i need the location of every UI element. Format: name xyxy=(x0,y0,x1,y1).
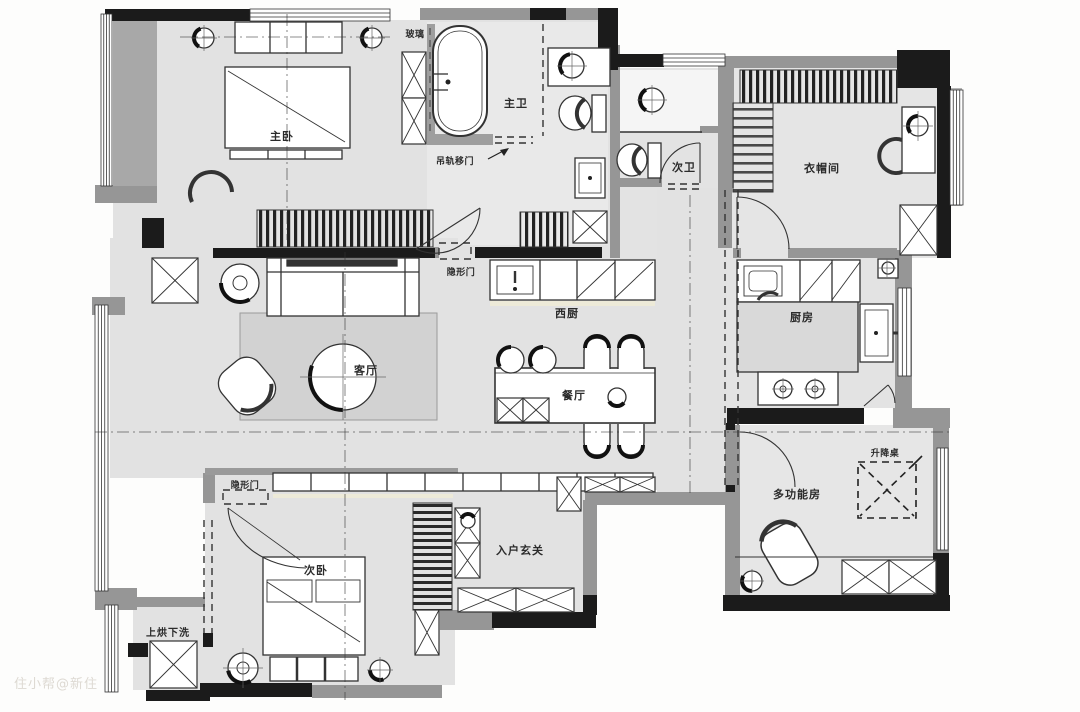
dining-chair-icon xyxy=(618,424,644,457)
label-second-bath: 次卫 xyxy=(672,160,696,174)
shower-area-floor xyxy=(620,70,718,132)
stool-icon xyxy=(498,347,524,373)
watermark-text: 住小帮@新住 xyxy=(14,676,98,692)
bath-cabinet-icon xyxy=(575,158,605,198)
dining-chair-icon xyxy=(584,336,610,369)
floor-plan-image: 主卧 主卫 次卫 衣帽间 客厅 西厨 餐厅 厨房 多功能房 次卧 入户玄关 上烘… xyxy=(0,0,1080,712)
window-icon xyxy=(663,54,725,66)
kitchen-counter-icon xyxy=(737,260,860,302)
bathtub-icon xyxy=(433,26,487,136)
label-glass: 玻璃 xyxy=(405,28,424,40)
master-toilet-icon xyxy=(559,95,606,132)
label-second-bedroom: 次卧 xyxy=(304,563,328,577)
second-bedroom-wardrobe-icon xyxy=(413,503,452,610)
xbox-cabinet-icon xyxy=(842,560,889,594)
label-laundry: 上烘下洗 xyxy=(146,626,190,639)
window-icon xyxy=(937,448,948,550)
xbox-cabinet-icon xyxy=(402,98,426,144)
window-icon xyxy=(898,288,911,376)
sofa-icon xyxy=(267,258,419,316)
cabinet-accent-strip xyxy=(273,494,453,498)
xbox-cabinet-icon xyxy=(152,258,198,303)
label-living-room: 客厅 xyxy=(353,363,378,377)
xbox-cabinet-icon xyxy=(516,588,574,612)
xbox-cabinet-icon xyxy=(573,211,607,243)
hall-wardrobe-icon xyxy=(520,212,568,247)
side-table-icon xyxy=(221,264,259,302)
stove-icon xyxy=(758,372,838,405)
floor-plan-canvas: 主卧 主卫 次卫 衣帽间 客厅 西厨 餐厅 厨房 多功能房 次卧 入户玄关 上烘… xyxy=(0,0,1080,712)
corridor-floor xyxy=(657,188,727,503)
xbox-cabinet-icon xyxy=(455,543,480,578)
plant-icon xyxy=(461,514,475,528)
label-kitchen: 厨房 xyxy=(790,310,814,324)
xbox-cabinet-icon xyxy=(402,52,426,98)
master-bed-icon xyxy=(225,67,350,159)
xbox-cabinet-icon xyxy=(620,477,655,492)
label-hidden-door-second: 隐形门 xyxy=(231,479,260,491)
xbox-cabinet-icon xyxy=(415,610,439,655)
label-cloakroom: 衣帽间 xyxy=(804,161,840,175)
xbox-cabinet-icon xyxy=(900,205,937,255)
xbox-cabinet-icon xyxy=(889,560,936,594)
headboard-shelf-icon xyxy=(235,22,342,53)
xbox-cabinet-icon xyxy=(458,588,516,612)
label-dining-room: 餐厅 xyxy=(561,388,586,402)
xbox-cabinet-icon xyxy=(497,398,523,422)
window-icon xyxy=(250,9,390,21)
stool-icon xyxy=(530,347,556,373)
label-master-bedroom: 主卧 xyxy=(270,129,294,143)
xbox-cabinet-icon xyxy=(523,398,549,422)
cloakroom-top-wardrobe-icon xyxy=(740,70,897,103)
label-west-kitchen: 西厨 xyxy=(555,307,579,320)
table-decor-icon xyxy=(608,388,626,406)
cloakroom-drawers-icon xyxy=(733,103,773,192)
label-lift-table: 升降桌 xyxy=(871,447,900,459)
west-kitchen-counter-icon xyxy=(490,260,655,300)
master-wardrobe-icon xyxy=(257,210,433,247)
dining-chair-icon xyxy=(584,424,610,457)
second-toilet-icon xyxy=(617,143,661,178)
label-multi-function-room: 多功能房 xyxy=(773,487,821,501)
tv-icon xyxy=(287,260,397,266)
dining-chair-icon xyxy=(618,336,644,369)
label-entry-foyer: 入户玄关 xyxy=(496,543,544,557)
meter-box-icon xyxy=(878,259,898,278)
counter-accent-strip xyxy=(490,301,655,306)
xbox-cabinet-icon xyxy=(585,477,620,492)
label-hidden-door-master: 隐形门 xyxy=(447,266,476,278)
xbox-cabinet-icon xyxy=(557,477,581,511)
label-master-bath: 主卫 xyxy=(504,96,528,110)
label-rail-sliding-door: 吊轨移门 xyxy=(436,155,474,167)
xbox-cabinet-icon xyxy=(150,641,197,688)
